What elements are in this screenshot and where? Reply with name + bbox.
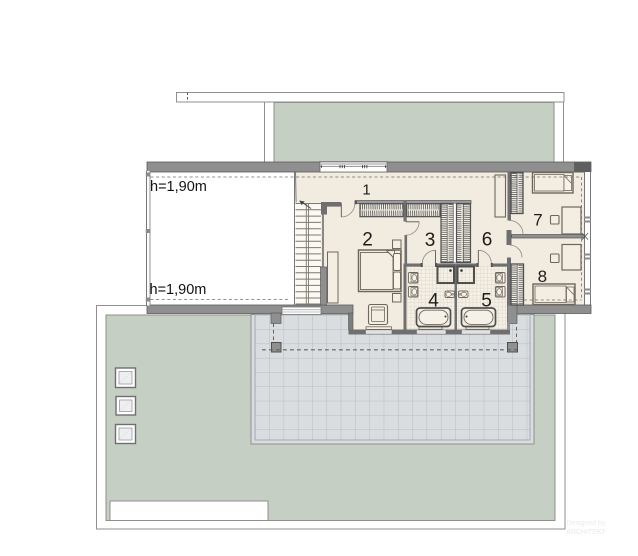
svg-text:8: 8 xyxy=(538,267,547,286)
svg-text:5: 5 xyxy=(481,291,492,312)
svg-text:ARCHITEKT: ARCHITEKT xyxy=(566,529,606,536)
svg-text:h=1,90m: h=1,90m xyxy=(150,282,207,298)
svg-text:Designed by: Designed by xyxy=(567,520,606,527)
svg-text:3: 3 xyxy=(425,230,436,251)
svg-text:2: 2 xyxy=(362,229,373,250)
svg-text:6: 6 xyxy=(482,229,493,250)
svg-text:4: 4 xyxy=(428,291,439,312)
svg-text:h=1,90m: h=1,90m xyxy=(150,179,207,195)
svg-text:7: 7 xyxy=(533,211,542,230)
svg-text:1: 1 xyxy=(362,182,370,199)
